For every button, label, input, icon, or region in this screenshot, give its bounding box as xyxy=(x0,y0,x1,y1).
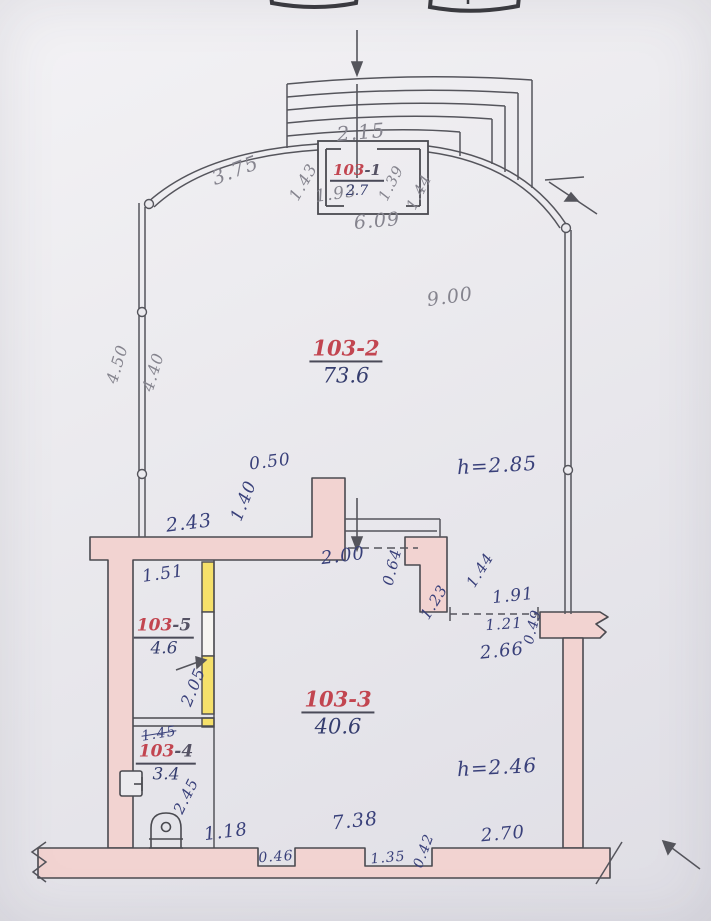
room-label-103-3: 103-3 40.6 xyxy=(301,688,374,737)
room-area: 4.6 xyxy=(134,641,194,659)
room-number-suffix: -1 xyxy=(364,161,381,179)
dim-niche-b: 1.35 xyxy=(370,848,406,867)
room-area: 73.6 xyxy=(309,365,382,387)
room-label-103-4: 103-4 3.4 xyxy=(136,744,196,785)
entrance-arrow-icon xyxy=(352,30,362,550)
room-number: 103-3 xyxy=(301,688,374,713)
room-number-suffix: -5 xyxy=(172,616,191,636)
dim-vestibule-total: 6.09 xyxy=(353,208,401,234)
room-number-prefix: 103 xyxy=(139,742,175,762)
room-number: 103-4 xyxy=(136,744,196,765)
room-label-103-2: 103-2 73.6 xyxy=(309,337,382,386)
room-area: 2.7 xyxy=(330,184,384,199)
section-mark xyxy=(545,177,597,214)
room-label-103-5: 103-5 4.6 xyxy=(134,618,194,659)
room-number: 103-1 xyxy=(330,163,384,182)
room-area: 3.4 xyxy=(136,767,196,785)
yellow-partitions xyxy=(202,562,214,727)
room-label-103-1: 103-1 2.7 xyxy=(330,162,384,198)
room-number-prefix: 103 xyxy=(304,686,348,711)
room-number-prefix: 103 xyxy=(137,616,173,636)
room-number-suffix: -2 xyxy=(356,335,379,360)
room-number-prefix: 103 xyxy=(333,161,364,179)
pink-masonry-walls xyxy=(38,478,610,878)
height-hall: h=2.85 xyxy=(456,451,537,479)
dim-niche-a: 0.46 xyxy=(258,848,294,866)
height-lower: h=2.46 xyxy=(456,753,537,781)
paper-edge-fragments xyxy=(270,0,520,11)
room-area: 40.6 xyxy=(301,716,374,738)
room-number-suffix: -4 xyxy=(174,742,193,762)
dim-door-width: 1.21 xyxy=(485,614,524,635)
floor-plan: 2.15 1.43 1.93 1.39 1.44 6.09 3.75 9.00 … xyxy=(0,0,711,921)
dim-bottom-right: 2.70 xyxy=(480,822,526,847)
room-number: 103-5 xyxy=(134,618,194,639)
room-number: 103-2 xyxy=(309,337,382,362)
room-number-suffix: -3 xyxy=(348,686,371,711)
room-number-prefix: 103 xyxy=(312,335,356,360)
dim-stair-width: 2.15 xyxy=(336,118,386,146)
toilet-icon xyxy=(149,813,183,848)
